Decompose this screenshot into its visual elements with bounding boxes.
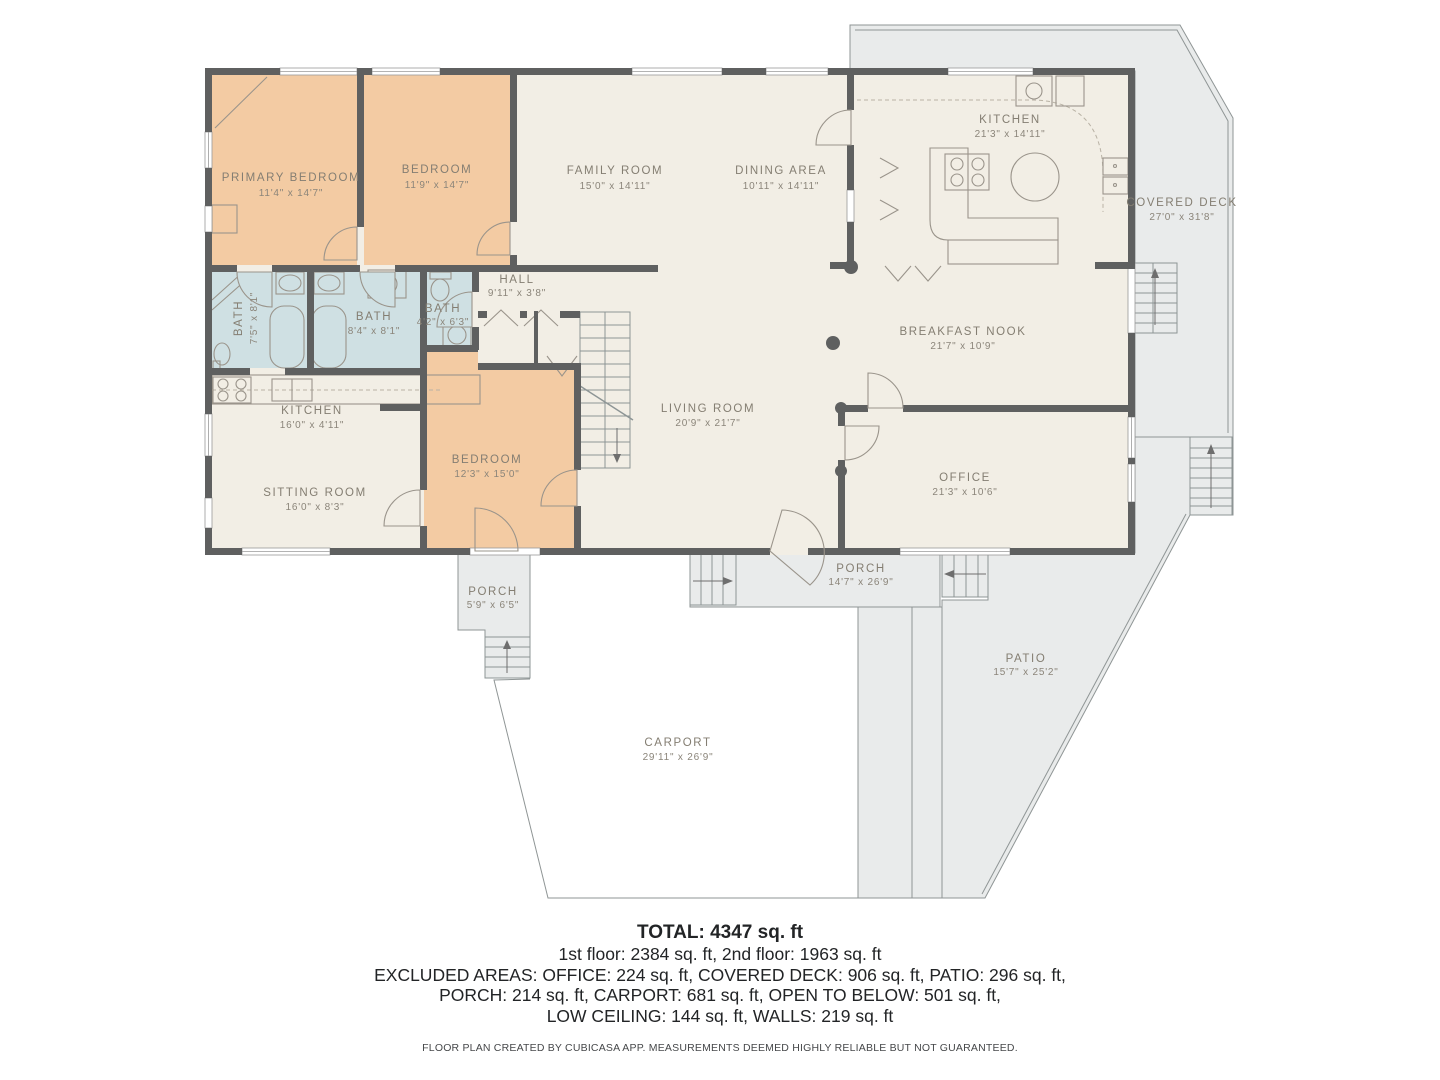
floor-plan-page: PRIMARY BEDROOM 11'4" x 14'7" BEDROOM 11… xyxy=(0,0,1440,1080)
room-dims: 21'3" x 14'11" xyxy=(975,129,1046,140)
room-dims: 8'4" x 8'1" xyxy=(348,326,401,337)
room-label: KITCHEN xyxy=(281,405,343,417)
room-dims: 27'0" x 31'8" xyxy=(1149,212,1214,223)
room-label: CARPORT xyxy=(644,737,711,749)
room-label: BATH xyxy=(425,303,461,315)
room-dims: 5'9" x 6'5" xyxy=(467,600,520,611)
total-area-text: TOTAL: 4347 sq. ft xyxy=(0,922,1440,944)
room-dims: 16'0" x 4'11" xyxy=(280,420,345,431)
patio-stairs xyxy=(942,553,988,597)
room-label: BATH xyxy=(356,311,392,323)
room-dims: 14'7" x 26'9" xyxy=(828,577,893,588)
room-dims: 29'11" x 26'9" xyxy=(643,752,714,763)
room-label: BEDROOM xyxy=(402,164,473,176)
room-label: OFFICE xyxy=(939,472,991,484)
room-dims: 10'11" x 14'11" xyxy=(743,181,819,192)
room-dims: 7'5" x 8'1" xyxy=(249,292,260,345)
room-dims: 21'7" x 10'9" xyxy=(930,341,995,352)
main-staircase xyxy=(577,312,633,468)
room-label: BEDROOM xyxy=(452,454,523,466)
room-dims: 11'4" x 14'7" xyxy=(259,188,324,199)
room-dims: 16'0" x 8'3" xyxy=(286,502,345,513)
room-label: PRIMARY BEDROOM xyxy=(222,172,361,184)
disclaimer-text: FLOOR PLAN CREATED BY CUBICASA APP. MEAS… xyxy=(0,1042,1440,1054)
room-dims: 15'0" x 14'11" xyxy=(580,181,651,192)
room-label: PORCH xyxy=(468,586,518,598)
room-dims: 12'3" x 15'0" xyxy=(454,469,519,480)
room-label: LIVING ROOM xyxy=(661,403,755,415)
room-dims: 11'9" x 14'7" xyxy=(405,180,470,191)
room-dims: 4'2" x 6'3" xyxy=(417,317,470,328)
room-dims: 21'3" x 10'6" xyxy=(932,487,997,498)
excluded-areas-text-3: LOW CEILING: 144 sq. ft, WALLS: 219 sq. … xyxy=(0,1006,1440,1027)
room-dims: 20'9" x 21'7" xyxy=(675,418,740,429)
deck-stairs-lower xyxy=(1190,437,1232,515)
excluded-areas-text-2: PORCH: 214 sq. ft, CARPORT: 681 sq. ft, … xyxy=(0,985,1440,1006)
area-summary: TOTAL: 4347 sq. ft 1st floor: 2384 sq. f… xyxy=(0,922,1440,1054)
walkway xyxy=(858,607,942,898)
room-label: COVERED DECK xyxy=(1126,197,1237,209)
porch-left-stairs xyxy=(485,637,530,678)
room-label: HALL xyxy=(499,274,534,286)
room-dims: 15'7" x 25'2" xyxy=(993,667,1058,678)
room-label: SITTING ROOM xyxy=(263,487,367,499)
deck-stairs-upper xyxy=(1133,263,1177,333)
floor-plan-drawing: PRIMARY BEDROOM 11'4" x 14'7" BEDROOM 11… xyxy=(0,0,1440,910)
room-label: PORCH xyxy=(836,563,886,575)
room-label: KITCHEN xyxy=(979,114,1041,126)
floors-area-text: 1st floor: 2384 sq. ft, 2nd floor: 1963 … xyxy=(0,944,1440,965)
porch-stairs-west xyxy=(690,553,736,605)
room-label: DINING AREA xyxy=(735,165,827,177)
room-dims: 9'11" x 3'8" xyxy=(488,288,546,299)
room-label: FAMILY ROOM xyxy=(567,165,663,177)
room-label: PATIO xyxy=(1006,653,1047,665)
room-label: BREAKFAST NOOK xyxy=(900,326,1027,338)
excluded-areas-text-1: EXCLUDED AREAS: OFFICE: 224 sq. ft, COVE… xyxy=(0,965,1440,986)
room-label: BATH xyxy=(233,300,245,336)
